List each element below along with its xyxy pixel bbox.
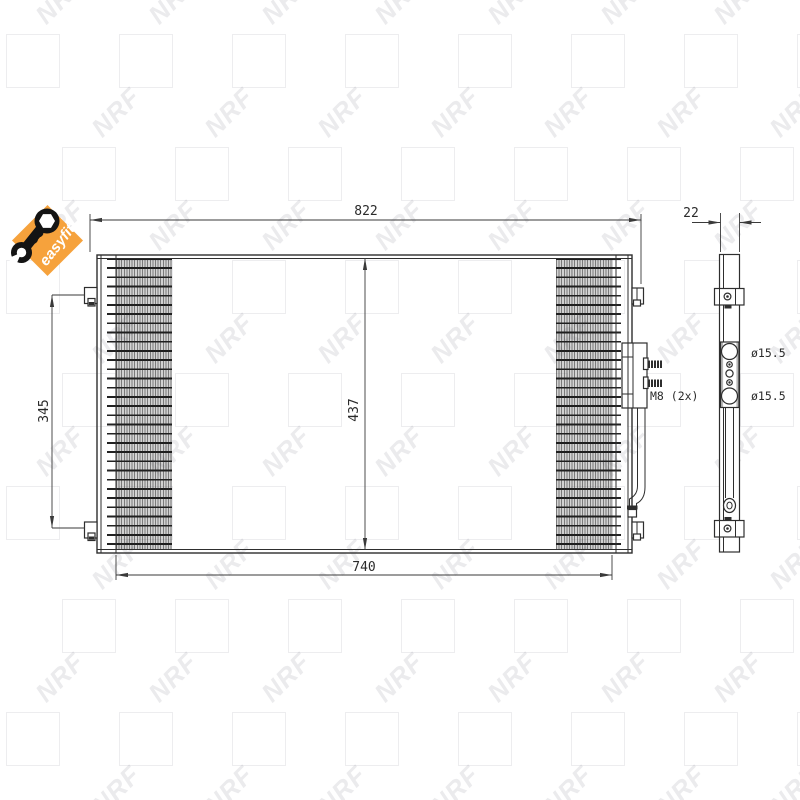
side-view — [715, 255, 745, 553]
mount-tab-right-bottom — [632, 522, 644, 540]
side-clamp-top — [715, 289, 745, 309]
mount-tab-right-top — [632, 288, 644, 306]
dim-822-label: 822 — [340, 205, 392, 219]
dim-740-label: 740 — [338, 561, 390, 575]
port-bottom — [722, 388, 738, 404]
dim-437-label: 437 — [348, 394, 362, 426]
main-view — [85, 255, 663, 553]
port-top-diameter-label: ø15.5 — [751, 346, 791, 360]
port-bottom-diameter-label: ø15.5 — [751, 389, 791, 403]
bolt-spec-label: M8 (2x) — [650, 389, 710, 403]
side-port-panel — [721, 342, 740, 408]
dim-345-label: 345 — [38, 395, 52, 427]
mount-tab-left-bottom — [85, 522, 98, 541]
dim-22-label: 22 — [677, 207, 705, 221]
easyfit-badge: easyfit — [5, 193, 105, 293]
side-clamp-bottom — [715, 517, 745, 537]
port-top — [722, 344, 738, 360]
product-drawing-page: NRFNRFNRFNRFNRFNRFNRFNRFNRFNRFNRFNRFNRFN… — [0, 0, 800, 800]
refrigerant-pipe — [627, 408, 645, 517]
stud-bolt-bottom — [644, 377, 663, 389]
stud-bolt-top — [644, 358, 663, 370]
